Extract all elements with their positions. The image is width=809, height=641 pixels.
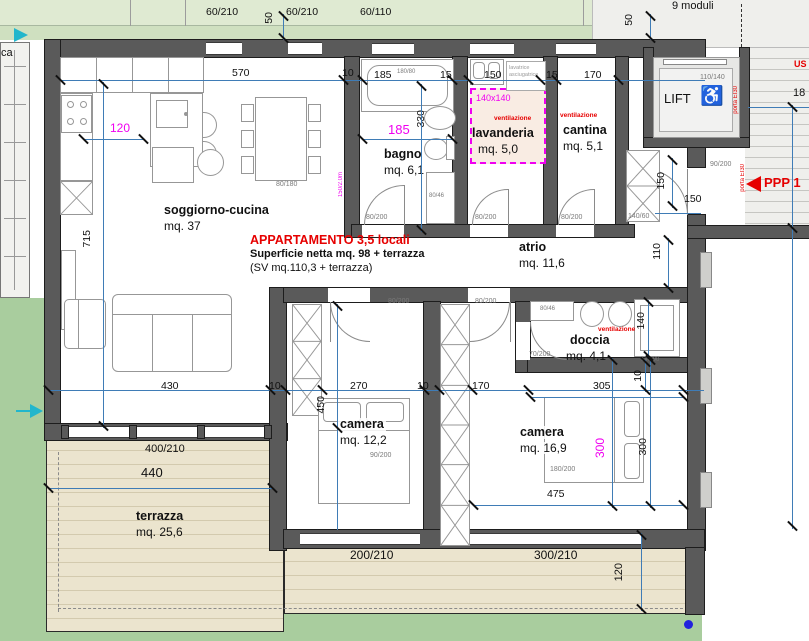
- lift-wall-right: [740, 48, 749, 147]
- wall-left: [45, 40, 60, 438]
- mullion: [198, 426, 204, 438]
- terrace-dashed-edge: [58, 452, 59, 612]
- dim-label: 150: [684, 194, 702, 205]
- dim-label: 120: [614, 563, 625, 581]
- apartment-subtitle: Superficie netta mq. 98 + terrazza: [250, 249, 425, 260]
- dimension-line: [530, 397, 684, 398]
- porta-ei30-note: porta EI30: [740, 164, 746, 192]
- room-area-cantina: mq. 5,1: [563, 140, 603, 152]
- window-60-210: [288, 42, 322, 55]
- sill-tab: [700, 368, 712, 404]
- wall-central: [424, 302, 440, 548]
- rail-tick: [4, 180, 26, 181]
- window-cantina: [556, 43, 596, 55]
- dimension-line: [60, 80, 705, 81]
- rail-tick: [4, 66, 26, 67]
- room-area-doccia: mq. 4,1: [566, 350, 606, 362]
- rail-tick: [4, 256, 26, 257]
- door-gap: [328, 288, 370, 302]
- burner: [80, 101, 87, 108]
- lift-wall-left: [644, 48, 653, 147]
- chair: [308, 130, 321, 148]
- wall-camera1-left: [270, 288, 286, 550]
- rail-tick: [4, 218, 26, 219]
- sofa: [112, 294, 232, 372]
- balcony-rail: [14, 50, 15, 290]
- sofa-seat-line: [112, 314, 232, 315]
- dimension-line: [83, 139, 145, 140]
- window-label: 60/210: [286, 7, 318, 18]
- room-name-atrio: atrio: [519, 241, 546, 254]
- entry-door-label: 90/200: [710, 161, 731, 168]
- dim-label: 300: [638, 438, 649, 456]
- room-area-terrazza: mq. 25,6: [136, 526, 183, 538]
- terrace-deck-strip: [284, 548, 702, 614]
- site-arrow-icon: [14, 28, 28, 42]
- door-label: 80/200: [388, 298, 409, 305]
- survey-dot: [684, 620, 693, 629]
- shower-size-label: 80/46: [429, 193, 444, 199]
- basin-size-label: 80/46: [540, 306, 555, 312]
- bed-size-label: 180/200: [548, 466, 577, 473]
- strip-divider: [185, 0, 186, 26]
- ppp-arrow-icon: [746, 176, 761, 192]
- door-label: 80/200: [561, 214, 582, 221]
- bed-size-label: 90/200: [368, 452, 393, 459]
- door-leaf: [594, 189, 595, 225]
- counter-divider: [168, 57, 169, 93]
- dining-table: [255, 97, 307, 181]
- window-label: 400/210: [145, 444, 185, 455]
- sill-tab: [700, 472, 712, 508]
- dim-label: 150: [484, 70, 502, 81]
- dim-label: 440: [141, 466, 163, 479]
- dimension-line: [641, 533, 642, 611]
- dim-label: 18: [793, 88, 805, 99]
- dim-label: 475: [547, 489, 565, 500]
- dimension-line: [337, 304, 338, 530]
- lift-door: [663, 59, 727, 65]
- stair-landing: [745, 48, 809, 230]
- chair: [241, 104, 254, 122]
- door-label: 80/200: [475, 298, 496, 305]
- counter-divider: [132, 57, 133, 93]
- door-label: 80/200: [475, 214, 496, 221]
- rail-tick: [4, 104, 26, 105]
- armchair-top: [152, 147, 194, 183]
- terrace-dashed-edge: [58, 608, 688, 609]
- door-gap: [556, 225, 594, 237]
- dimension-line: [668, 238, 669, 290]
- dim-label: 715: [82, 230, 93, 248]
- doccia-toilet: [580, 301, 604, 327]
- burner: [67, 101, 74, 108]
- bed-fold-line: [614, 397, 615, 483]
- dim-label-magenta: 120: [110, 122, 130, 134]
- garden-left: [0, 298, 46, 641]
- lift-label: LIFT: [664, 92, 691, 105]
- pillow: [624, 401, 640, 437]
- stool: [203, 112, 217, 138]
- room-name-soggiorno: soggiorno-cucina: [164, 204, 269, 217]
- mullion: [130, 426, 136, 438]
- room-area-soggiorno: mq. 37: [164, 220, 201, 232]
- burner: [80, 118, 87, 125]
- dimension-line: [612, 358, 613, 508]
- room-area-camera2: mq. 16,9: [518, 442, 569, 454]
- room-area-atrio: mq. 11,6: [519, 257, 565, 269]
- chair: [308, 156, 321, 174]
- dimension-line: [473, 505, 685, 506]
- wardrobe-camera2: [440, 304, 470, 546]
- door-label: 70/200: [529, 351, 550, 358]
- wardrobe-size-label: 140/60: [628, 213, 649, 220]
- window-lavanderia: [470, 43, 514, 55]
- chair: [308, 104, 321, 122]
- wall-note: 150/2.0m: [338, 172, 344, 197]
- wall-terrace-right: [686, 548, 704, 614]
- mullion: [265, 426, 271, 438]
- dim-label: 10: [342, 68, 354, 79]
- moduli-label: 9 moduli: [672, 1, 714, 12]
- window-label: 200/210: [350, 549, 393, 561]
- floor-plan: LIFT ♿ 110/140 lavatrice asciugatrice: [0, 0, 809, 641]
- dimension-line: [362, 139, 454, 140]
- dimension-line: [748, 107, 809, 108]
- room-name-bagno: bagno: [384, 148, 422, 161]
- dim-label-magenta: 300: [594, 438, 606, 458]
- dimension-line: [421, 84, 422, 232]
- table-size-label: 80/180: [276, 181, 297, 188]
- room-area-camera1: mq. 12,2: [338, 434, 389, 446]
- marker-line: [16, 410, 32, 412]
- dimension-line: [655, 213, 701, 214]
- sill-tab: [700, 252, 712, 288]
- room-name-lavanderia: lavanderia: [472, 127, 534, 140]
- burner: [67, 118, 74, 125]
- chair: [241, 156, 254, 174]
- door-leaf: [404, 185, 405, 225]
- stove: [61, 95, 92, 133]
- dim-label: 170: [584, 70, 602, 81]
- door-gap: [516, 322, 530, 360]
- sofa-cushion-line: [192, 314, 193, 372]
- sink-tap: [184, 112, 188, 116]
- dim-label: 570: [232, 68, 250, 79]
- dim-label: 10: [633, 370, 644, 382]
- dim-label: 150: [656, 172, 667, 190]
- window-60-110: [372, 43, 414, 55]
- window-label: 60/110: [360, 7, 391, 18]
- door-leaf: [330, 302, 331, 342]
- tall-unit-hatch: [60, 181, 93, 215]
- window-400-210: [63, 426, 271, 438]
- box-label: 140x140: [476, 94, 511, 103]
- strip-divider: [583, 0, 584, 26]
- porta-ei30-note: porta EI30: [733, 86, 739, 114]
- door-arc-camera2: [470, 302, 510, 342]
- window-label: 60/210: [206, 7, 238, 18]
- dim-label: 140: [636, 312, 647, 330]
- dim-label: 110: [652, 243, 663, 260]
- room-name-cantina: cantina: [563, 124, 607, 137]
- mullion: [62, 426, 68, 438]
- ppp-label: PPP 1: [764, 176, 801, 189]
- room-area-lavanderia: mq. 5,0: [478, 143, 518, 155]
- door-leaf: [687, 169, 688, 215]
- room-name-camera2: camera: [518, 426, 566, 439]
- armchair: [64, 299, 106, 349]
- door-leaf: [508, 189, 509, 225]
- apartment-subtitle2: (SV mq.110,3 + terrazza): [250, 263, 372, 274]
- window-60-210: [206, 42, 242, 55]
- round-table: [197, 149, 224, 176]
- dimension-line: [48, 390, 704, 391]
- lift-wall-bottom: [644, 138, 749, 147]
- apartment-title: APPARTAMENTO 3,5 locali: [250, 234, 410, 247]
- dim-label: 50: [264, 12, 275, 24]
- rail-tick: [4, 142, 26, 143]
- counter-divider: [96, 57, 97, 93]
- door-gap: [470, 225, 508, 237]
- armchair-line: [78, 299, 79, 349]
- wheelchair-icon: ♿: [700, 84, 724, 108]
- room-area-bagno: mq. 6,1: [384, 164, 424, 176]
- door-arc-camera1: [330, 302, 370, 342]
- washer-label: lavatrice: [509, 66, 529, 72]
- dim-label-magenta: 185: [388, 123, 410, 136]
- tub-size-label: 180/80: [397, 69, 415, 75]
- doccia-bidet: [608, 301, 632, 327]
- dim-label: 50: [624, 14, 635, 26]
- neighbor-balcony: [0, 42, 30, 298]
- ventilazione-note: ventilazione: [494, 116, 531, 123]
- dimension-line: [645, 360, 646, 392]
- dimension-line: [672, 158, 673, 208]
- washbasin: [424, 106, 456, 130]
- room-name-terrazza: terrazza: [136, 510, 183, 523]
- chair: [241, 130, 254, 148]
- dim-label: 185: [374, 70, 392, 81]
- room-name-doccia: doccia: [570, 334, 610, 347]
- door-leaf: [510, 302, 511, 342]
- window-300-210: [455, 533, 641, 545]
- us-label: US: [794, 60, 807, 69]
- ventilazione-note: ventilazione: [560, 113, 597, 120]
- door-label: 80/200: [366, 214, 387, 221]
- window-label: 300/210: [534, 549, 577, 561]
- dimension-line: [792, 105, 793, 529]
- toilet: [424, 138, 448, 160]
- room-name-camera1: camera: [338, 418, 386, 431]
- window-200-210: [300, 533, 420, 545]
- edge-label: ca: [1, 48, 13, 59]
- dimension-line: [48, 488, 274, 489]
- strip-divider: [130, 0, 131, 26]
- dimension-line: [648, 300, 649, 358]
- dimension-line: [103, 82, 104, 428]
- dim-label: 450: [316, 396, 327, 414]
- dimension-line: [650, 358, 651, 508]
- sofa-cushion-line: [152, 314, 153, 372]
